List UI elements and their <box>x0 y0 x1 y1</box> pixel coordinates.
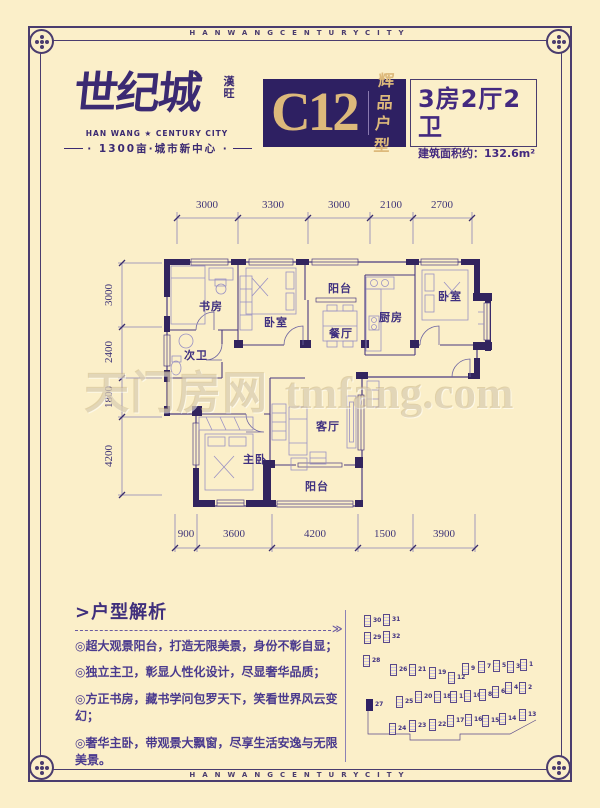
site-building-10 <box>464 690 471 702</box>
analysis-title: >户型解析 <box>75 598 167 624</box>
room-label-master-bedroom: 主卧 <box>243 451 267 467</box>
dim-label: 3000 <box>103 284 115 306</box>
site-building-number: 20 <box>424 694 432 700</box>
dim-label: 1500 <box>374 528 396 540</box>
room-label-study: 书房 <box>199 298 223 314</box>
site-building-31 <box>383 614 390 626</box>
analysis-list: ◎超大观景阳台，打造无限美景，身份不彰自显； ◎独立主卫，彰显人性化设计，尽显奢… <box>75 638 347 778</box>
site-building-8 <box>479 689 486 701</box>
site-building-20 <box>415 691 422 703</box>
dim-label: 4200 <box>103 445 115 467</box>
dim-label: 4200 <box>304 528 326 540</box>
site-building-number: 1 <box>529 662 533 668</box>
room-label-bedroom-right: 卧室 <box>438 288 462 304</box>
site-building-number: 5 <box>502 663 506 669</box>
analysis-divider <box>75 630 331 631</box>
flyer-page: HANWANGCENTURYCITY HANWANGCENTURYCITY 世纪… <box>0 0 600 808</box>
site-building-number: 23 <box>418 723 426 729</box>
dim-label: 3300 <box>262 199 284 211</box>
site-building-24 <box>389 723 396 735</box>
site-building-11 <box>450 691 457 703</box>
site-building-28 <box>363 655 370 667</box>
site-building-1 <box>520 659 527 671</box>
site-building-number: 4 <box>514 685 518 691</box>
analysis-item: ◎奢华主卧，带观景大飘窗，尽享生活安逸与无限美景。 <box>75 735 347 770</box>
site-building-7 <box>478 661 485 673</box>
site-building-number: 27 <box>375 702 383 708</box>
dim-label: 2700 <box>431 199 453 211</box>
site-building-number: 24 <box>398 726 406 732</box>
site-building-9 <box>462 663 469 675</box>
analysis-item: ◎超大观景阳台，打造无限美景，身份不彰自显； <box>75 638 347 655</box>
site-building-number: 31 <box>392 617 400 623</box>
site-building-number: 19 <box>438 670 446 676</box>
site-building-number: 30 <box>373 618 381 624</box>
watermark: 天门房网 tmfang.com <box>84 356 513 421</box>
room-label-dining: 餐厅 <box>329 325 353 341</box>
site-building-29 <box>364 632 371 644</box>
dim-label: 3000 <box>196 199 218 211</box>
dim-label: 900 <box>178 528 195 540</box>
site-building-23 <box>409 720 416 732</box>
site-building-26 <box>390 664 397 676</box>
site-plan-divider <box>345 610 346 762</box>
site-building-18 <box>434 691 441 703</box>
site-building-30 <box>364 615 371 627</box>
site-building-number: 25 <box>405 699 413 705</box>
site-building-number: 28 <box>372 658 380 664</box>
site-building-number: 7 <box>487 664 491 670</box>
dim-label: 3600 <box>223 528 245 540</box>
site-building-number: 26 <box>399 667 407 673</box>
site-building-number: 13 <box>528 712 536 718</box>
analysis-item: ◎方正书房，藏书学问包罗天下，笑看世界风云变幻； <box>75 691 347 726</box>
dim-label: 3000 <box>328 199 350 211</box>
site-building-21 <box>409 664 416 676</box>
site-building-number: 17 <box>456 718 464 724</box>
site-building-number: 9 <box>471 666 475 672</box>
site-building-number: 21 <box>418 667 426 673</box>
analysis-item: ◎独立主卫，彰显人性化设计，尽显奢华品质； <box>75 664 347 681</box>
site-building-number: 29 <box>373 635 381 641</box>
site-building-22 <box>429 719 436 731</box>
site-building-19 <box>429 667 436 679</box>
site-building-number: 32 <box>392 634 400 640</box>
site-building-3 <box>507 661 514 673</box>
room-label-balcony-bottom: 阳台 <box>305 478 329 494</box>
site-building-15 <box>482 715 489 727</box>
site-building-number: 12 <box>457 675 465 681</box>
dim-label: 3900 <box>433 528 455 540</box>
room-label-kitchen: 厨房 <box>379 309 403 325</box>
room-label-balcony-top: 阳台 <box>328 280 352 296</box>
site-building-14 <box>499 713 506 725</box>
site-building-2 <box>519 682 526 694</box>
site-plan: 3031293228262119129753127252018111086422… <box>350 600 550 770</box>
site-building-16 <box>465 714 472 726</box>
room-label-bedroom-mid: 卧室 <box>264 314 288 330</box>
site-building-5 <box>493 660 500 672</box>
site-building-27 <box>366 699 373 711</box>
site-building-32 <box>383 631 390 643</box>
site-building-13 <box>519 709 526 721</box>
site-building-number: 22 <box>438 722 446 728</box>
site-building-6 <box>492 686 499 698</box>
site-building-number: 14 <box>508 716 516 722</box>
analysis-arrow-icon: ≫ <box>332 624 342 635</box>
site-building-12 <box>448 672 455 684</box>
dim-label: 2100 <box>380 199 402 211</box>
site-building-17 <box>447 715 454 727</box>
site-building-4 <box>505 682 512 694</box>
site-building-number: 2 <box>528 685 532 691</box>
site-building-25 <box>396 696 403 708</box>
